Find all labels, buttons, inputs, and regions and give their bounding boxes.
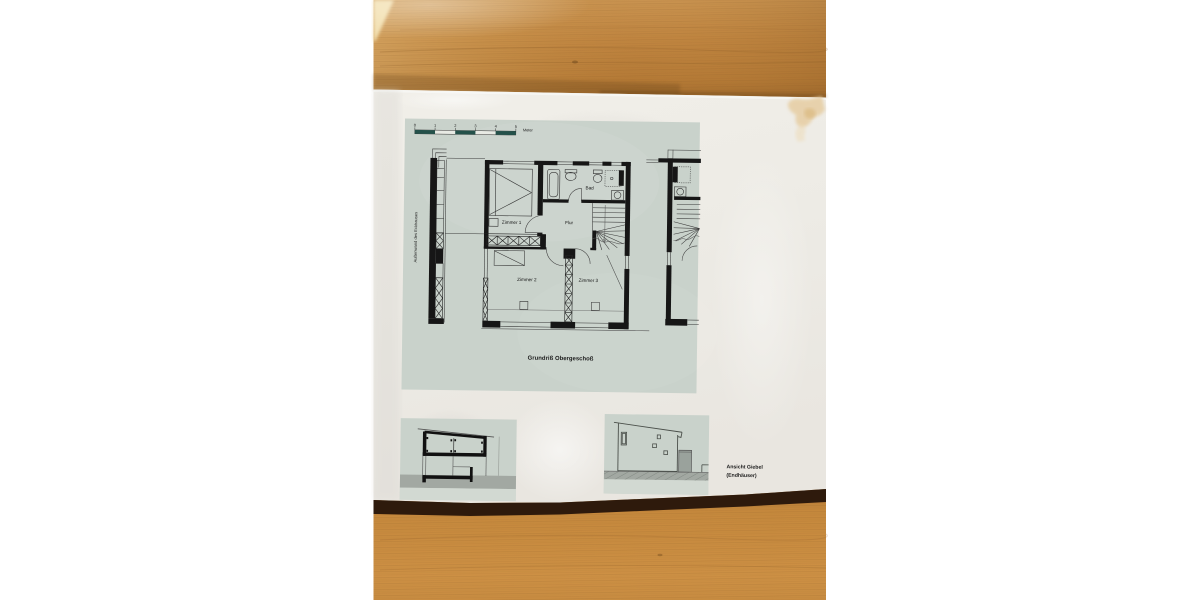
svg-text:Zimmer 2: Zimmer 2 — [517, 277, 537, 282]
svg-text:Meter: Meter — [523, 127, 534, 132]
svg-text:Außenwand des Eckhauses: Außenwand des Eckhauses — [413, 212, 419, 263]
svg-text:(Endhäuser): (Endhäuser) — [726, 473, 757, 479]
svg-text:5: 5 — [515, 124, 517, 129]
svg-text:2: 2 — [454, 123, 456, 128]
svg-text:Grundriß Obergeschoß: Grundriß Obergeschoß — [528, 356, 594, 363]
svg-text:Bad: Bad — [585, 185, 594, 190]
svg-text:Zimmer 3: Zimmer 3 — [579, 278, 599, 283]
svg-text:1: 1 — [434, 123, 436, 128]
svg-text:3: 3 — [474, 123, 476, 128]
svg-text:Ansicht Giebel: Ansicht Giebel — [726, 464, 763, 470]
svg-text:Flur: Flur — [565, 220, 573, 225]
svg-text:Zimmer 1: Zimmer 1 — [502, 220, 522, 225]
